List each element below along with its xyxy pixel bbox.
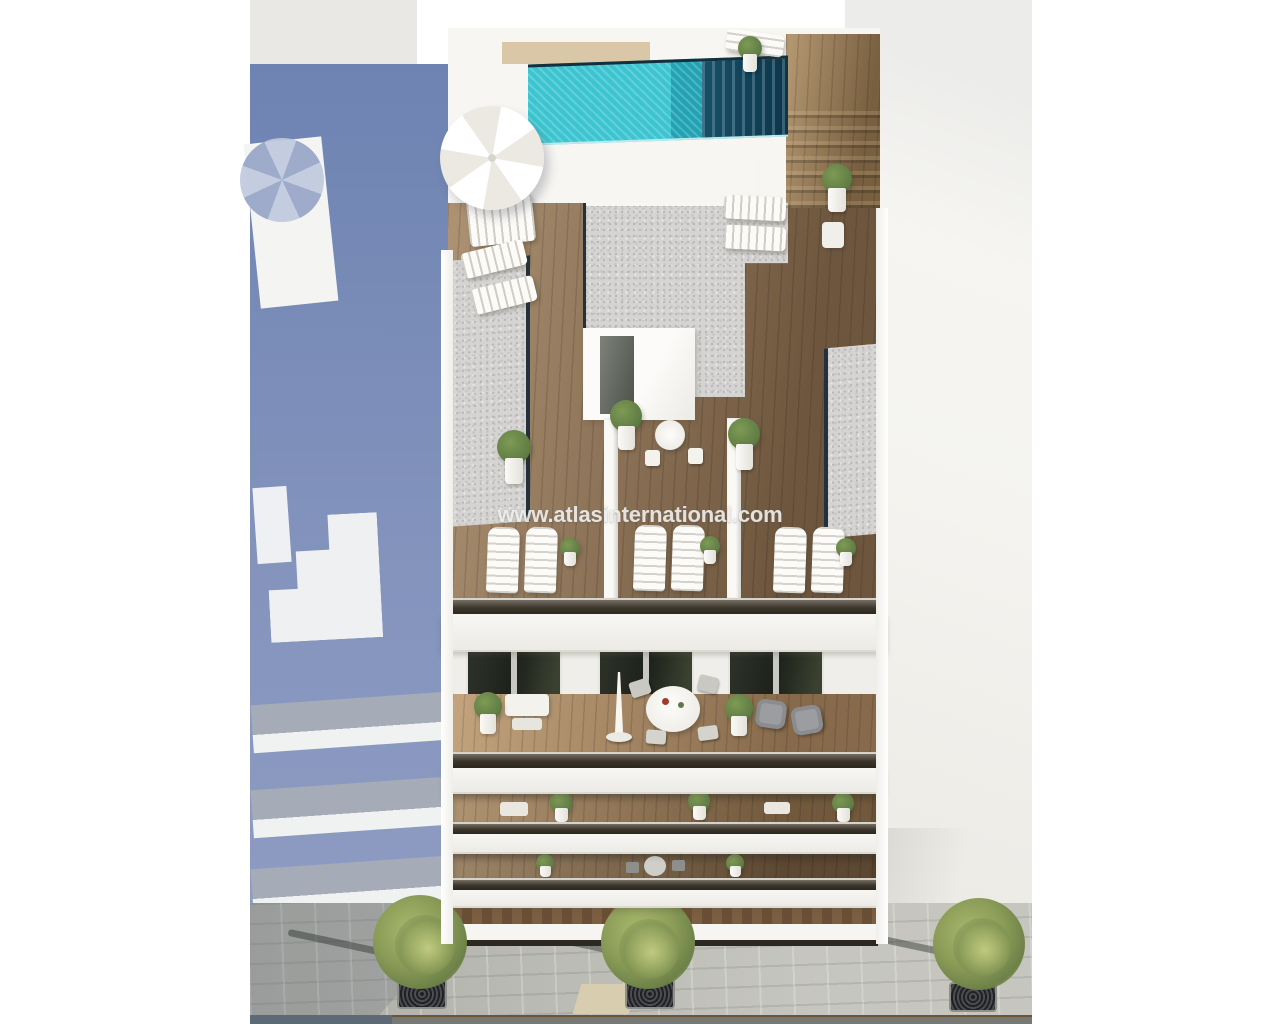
gravel-roof-right <box>824 344 880 539</box>
lower-balcony-plant <box>832 792 854 822</box>
terrace-plant <box>610 400 642 450</box>
balcony-round-table <box>646 686 700 732</box>
table-decor-red <box>662 698 669 705</box>
building-left-edge <box>441 250 453 944</box>
terrace-chair <box>688 448 703 464</box>
balcony-plant <box>725 694 753 736</box>
street-tree <box>593 893 703 1008</box>
sundeck-plant <box>700 536 720 564</box>
neighbor-umbrella-icon <box>240 138 324 222</box>
balcony-plant <box>474 692 502 734</box>
street-tree <box>925 898 1031 1010</box>
lower-balcony-plant <box>536 854 554 877</box>
balcony-stool <box>697 725 719 742</box>
upper-terrace-plant <box>822 164 852 212</box>
terrace-plant <box>728 418 760 470</box>
upper-terrace-lounger <box>723 224 786 251</box>
balcony-armchair <box>790 704 824 737</box>
street-tree <box>365 893 475 1008</box>
sundeck-lounger <box>486 526 520 593</box>
rooftop-umbrella-icon <box>440 106 544 210</box>
floor-slab <box>443 768 885 794</box>
terrace-table <box>655 420 685 450</box>
floor-slab <box>445 834 883 854</box>
road-curb <box>390 1015 1032 1017</box>
road-dark-segment <box>250 1015 392 1024</box>
table-decor-green <box>678 702 684 708</box>
lower-balcony-plant <box>550 792 572 822</box>
balcony-stool <box>646 729 667 744</box>
lower-chair <box>672 860 685 871</box>
left-balcony-bench <box>512 718 542 730</box>
balcony-window <box>466 650 562 698</box>
sundeck-lounger <box>633 524 667 591</box>
sundeck-lounger <box>773 526 807 593</box>
parasol-base <box>606 732 632 742</box>
building-right-edge <box>876 208 888 944</box>
lower-balcony-furniture <box>764 802 790 814</box>
neighbor-wall-patch <box>252 486 291 564</box>
lower-balcony-furniture <box>500 802 528 816</box>
poolside-plant <box>738 36 762 72</box>
architectural-render: www.atlasinternational.com <box>0 0 1280 1024</box>
watermark-text: www.atlasinternational.com <box>498 502 783 528</box>
floor-slab <box>447 890 881 908</box>
balcony-armchair <box>754 698 788 730</box>
terrace-chair <box>645 450 660 466</box>
lower-balcony-plant <box>726 854 744 877</box>
sundeck-plant <box>560 538 580 566</box>
sundeck-lounger <box>524 526 558 593</box>
sundeck-plant <box>836 538 856 566</box>
lower-chair <box>626 862 639 873</box>
upper-terrace-chair <box>822 222 844 248</box>
gray-roof-band <box>250 0 417 66</box>
upper-terrace-lounger <box>723 194 786 221</box>
lower-table <box>644 856 666 876</box>
floor-slab <box>441 614 887 652</box>
terrace-plant <box>497 430 531 484</box>
left-balcony-table <box>505 694 549 716</box>
balcony-window <box>728 650 824 698</box>
lower-balcony-plant <box>688 790 710 820</box>
